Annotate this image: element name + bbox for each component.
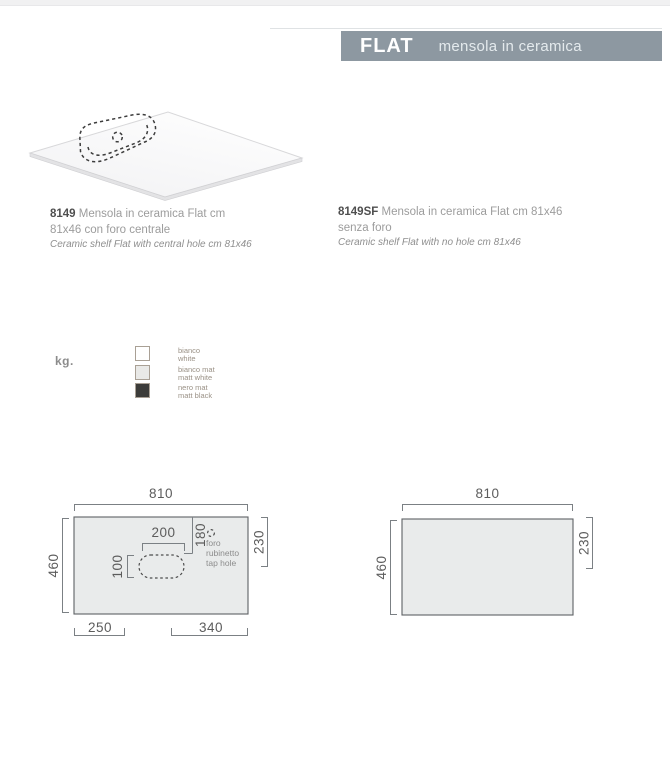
dim-label-460: 460	[374, 555, 389, 579]
page-top-strip	[0, 0, 670, 6]
finish-swatch-white	[135, 346, 150, 361]
tap-hole-label-it-2: rubinetto	[206, 548, 239, 558]
shelf-top-surface	[30, 112, 302, 197]
product-code: 8149	[50, 208, 76, 220]
dim-label-340: 340	[199, 620, 223, 635]
dim-label-810: 810	[475, 486, 499, 501]
technical-drawing-8149: 810 460 230 200 180 100 250 340 foro rub…	[30, 478, 280, 648]
weight-label: kg.	[55, 354, 74, 368]
product-8149-description: 8149 Mensola in ceramica Flat cm 81x46 c…	[50, 207, 320, 252]
product-desc-it: Mensola in ceramica Flat cm 81x46	[381, 206, 562, 218]
product-desc-en: Ceramic shelf Flat with no hole cm 81x46	[338, 236, 648, 250]
dim-label-230: 230	[577, 531, 592, 555]
product-desc-en: Ceramic shelf Flat with central hole cm …	[50, 238, 320, 252]
finish-name-en: white	[178, 355, 200, 363]
dim-label-200: 200	[151, 525, 175, 540]
product-line-2: 81x46 con foro centrale	[50, 223, 320, 239]
tap-hole-label-it-1: foro	[206, 538, 221, 548]
collection-title: FLAT	[360, 35, 414, 58]
finish-labels: bianco mat matt white	[178, 365, 215, 381]
product-line-2: senza foro	[338, 221, 648, 237]
header-bar: FLAT mensola in ceramica	[341, 31, 662, 61]
finish-labels: bianco white	[178, 346, 200, 362]
product-line-1: 8149 Mensola in ceramica Flat cm	[50, 207, 320, 223]
technical-drawing-8149SF: 810 460 230	[360, 478, 610, 648]
product-isometric-image	[25, 100, 310, 205]
dim-label-460: 460	[46, 553, 61, 577]
product-desc-it: Mensola in ceramica Flat cm	[79, 208, 225, 220]
product-line-1: 8149SF Mensola in ceramica Flat cm 81x46	[338, 205, 648, 221]
finish-name-en: matt black	[178, 392, 212, 400]
finish-swatch-matt-black	[135, 383, 150, 398]
collection-subtitle: mensola in ceramica	[439, 38, 582, 55]
dim-label-810: 810	[149, 486, 173, 501]
finish-row-matt-black: nero mat matt black	[135, 383, 212, 399]
product-8149SF-description: 8149SF Mensola in ceramica Flat cm 81x46…	[338, 205, 648, 250]
shelf-plan-rect	[402, 519, 573, 615]
dim-label-100: 100	[110, 554, 125, 578]
finish-labels: nero mat matt black	[178, 383, 212, 399]
header-hairline	[270, 28, 662, 29]
dim-label-250: 250	[88, 620, 112, 635]
finish-swatch-matt-white	[135, 365, 150, 380]
product-code: 8149SF	[338, 206, 378, 218]
tap-hole-label-en: tap hole	[206, 558, 237, 568]
finish-row-matt-white: bianco mat matt white	[135, 365, 215, 381]
finish-row-white: bianco white	[135, 346, 200, 362]
finish-name-en: matt white	[178, 374, 215, 382]
dim-label-230: 230	[252, 530, 267, 554]
